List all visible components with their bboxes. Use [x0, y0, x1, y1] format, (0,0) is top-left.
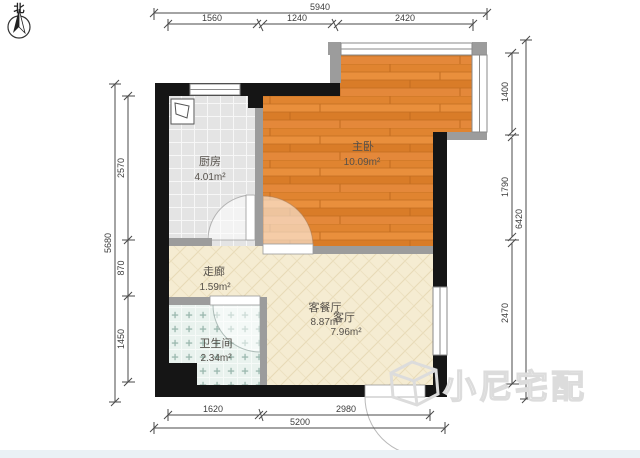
- room-label-bathroom: 卫生间: [200, 336, 233, 350]
- footer-strip: [0, 450, 640, 458]
- dim-bottom-seg1: 1620: [203, 404, 223, 414]
- dim-right-seg2: 1790: [500, 177, 510, 197]
- dim-left-total: 5680: [103, 233, 113, 253]
- living-right-window: [433, 287, 447, 355]
- dim-right-total: 6420: [514, 209, 524, 229]
- dim-top-total: 5940: [310, 2, 330, 12]
- room-area-bathroom: 2.34m²: [200, 353, 232, 364]
- room-area-corridor: 1.59m²: [199, 282, 231, 293]
- watermark-text: 小尼宅配: [443, 368, 587, 405]
- room-label-bedroom: 主卧: [352, 140, 374, 153]
- room-area-kitchen: 4.01m²: [194, 172, 226, 183]
- dim-bottom-seg2: 2980: [336, 404, 356, 414]
- dim-left-seg3: 1450: [116, 329, 126, 349]
- kitchen-sink-icon: [171, 99, 194, 124]
- dim-right-seg1: 1400: [500, 82, 510, 102]
- bedroom-top-window: [341, 43, 472, 55]
- dim-top-seg2: 1240: [287, 13, 307, 23]
- dim-left-seg2: 870: [116, 260, 126, 275]
- bedroom-right-window: [472, 55, 487, 132]
- dim-right-seg3: 2470: [500, 303, 510, 323]
- dim-bottom-total: 5200: [290, 417, 310, 427]
- bedroom-door-leaf: [263, 244, 313, 254]
- floor-plan-svg: 厨房 4.01m² 主卧 10.09m² 走廊 1.59m² 卫生间 2.34m…: [0, 0, 640, 458]
- room-label-living: 客厅: [333, 310, 355, 324]
- room-label-corridor: 走廊: [203, 264, 225, 278]
- dim-top-seg1: 1560: [202, 13, 222, 23]
- north-arrow-icon: 北: [8, 1, 30, 38]
- dim-top-seg3: 2420: [395, 13, 415, 23]
- room-area-bedroom: 10.09m²: [344, 157, 381, 168]
- room-area-living: 7.96m²: [330, 327, 362, 338]
- room-label-kitchen: 厨房: [199, 155, 221, 168]
- dim-left-seg1: 2570: [116, 158, 126, 178]
- floor-plan-canvas: 厨房 4.01m² 主卧 10.09m² 走廊 1.59m² 卫生间 2.34m…: [0, 0, 640, 458]
- bathroom-door-leaf: [210, 296, 260, 305]
- kitchen-door-leaf: [246, 195, 255, 240]
- kitchen-window: [190, 84, 240, 95]
- room-bedroom-floor-jut: [338, 55, 472, 133]
